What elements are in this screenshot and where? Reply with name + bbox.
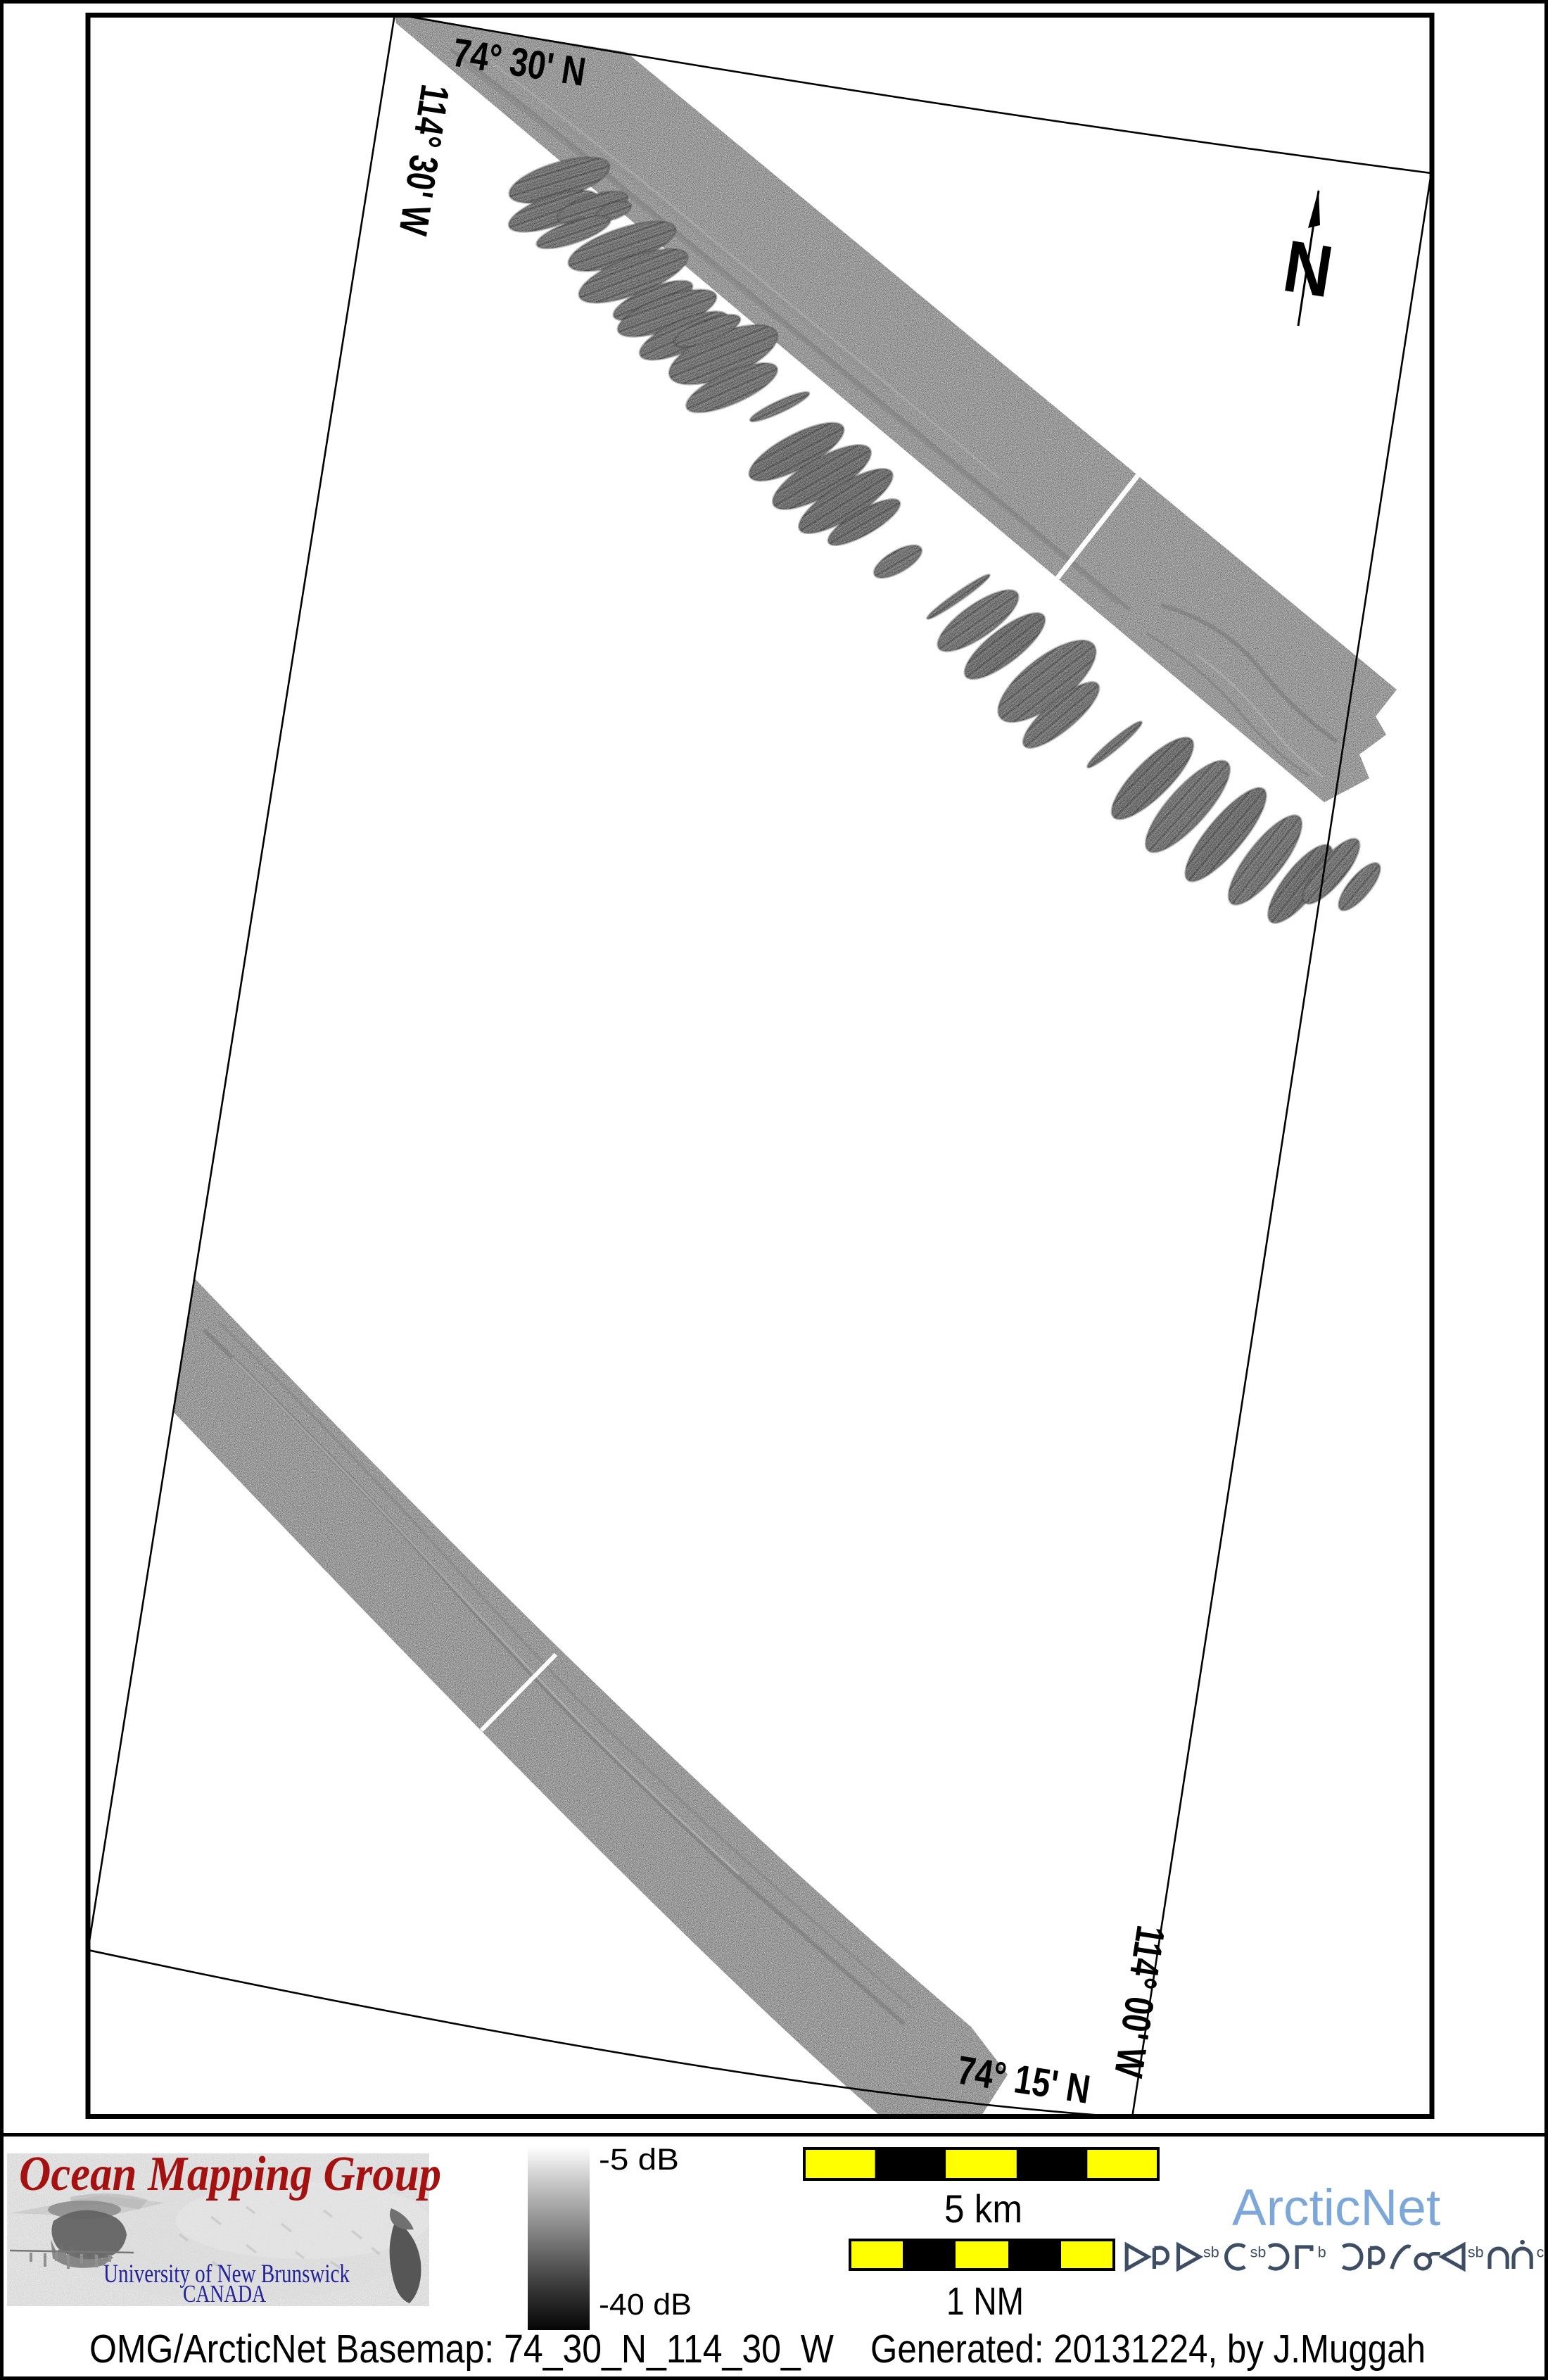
svg-text:Generated: 20131224, by J.Mugg: Generated: 20131224, by J.Muggah bbox=[870, 2327, 1426, 2372]
svg-text:OMG/ArcticNet Basemap: 74_30_N: OMG/ArcticNet Basemap: 74_30_N_114_30_W bbox=[89, 2327, 834, 2372]
svg-text:b: b bbox=[1318, 2244, 1326, 2261]
svg-text:-40 dB: -40 dB bbox=[599, 2288, 692, 2322]
svg-text:1 NM: 1 NM bbox=[946, 2279, 1024, 2323]
svg-text:5 km: 5 km bbox=[944, 2186, 1022, 2231]
svg-text:CANADA: CANADA bbox=[183, 2280, 267, 2308]
svg-text:ArcticNet: ArcticNet bbox=[1232, 2179, 1440, 2236]
svg-text:sb: sb bbox=[1468, 2244, 1484, 2261]
svg-text:sb: sb bbox=[1203, 2244, 1219, 2261]
svg-text:-5 dB: -5 dB bbox=[599, 2143, 679, 2177]
svg-text:Ocean Mapping Group: Ocean Mapping Group bbox=[19, 2147, 441, 2201]
svg-text:sb: sb bbox=[1250, 2244, 1267, 2261]
svg-text:c: c bbox=[1537, 2244, 1544, 2261]
